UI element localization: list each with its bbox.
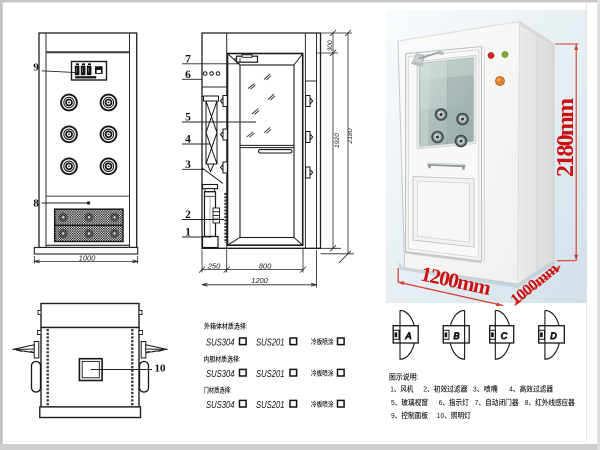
svg-text:1920: 1920 xyxy=(334,133,341,148)
svg-text:1200: 1200 xyxy=(251,276,269,285)
svg-text:4、高效过滤器: 4、高效过滤器 xyxy=(509,383,554,394)
svg-text:3、喷嘴: 3、喷嘴 xyxy=(473,383,499,394)
svg-text:冷板喷涂: 冷板喷涂 xyxy=(311,336,334,346)
svg-text:内胆材质选择:: 内胆材质选择: xyxy=(204,354,241,364)
svg-text:2、初效过滤器: 2、初效过滤器 xyxy=(423,383,468,394)
svg-text:8: 8 xyxy=(33,198,39,210)
svg-text:6、指示灯: 6、指示灯 xyxy=(439,397,470,408)
svg-text:8、红外线感应器: 8、红外线感应器 xyxy=(525,397,576,408)
svg-text:A: A xyxy=(404,331,411,341)
svg-text:SUS201: SUS201 xyxy=(256,400,285,411)
svg-text:9、控制面板: 9、控制面板 xyxy=(391,410,429,421)
svg-text:10、照明灯: 10、照明灯 xyxy=(437,410,472,421)
svg-text:7、自动闭门器: 7、自动闭门器 xyxy=(475,397,520,408)
svg-text:D: D xyxy=(550,331,557,341)
svg-text:SUS304: SUS304 xyxy=(206,369,235,380)
svg-text:250: 250 xyxy=(207,261,221,270)
svg-text:2180mm: 2180mm xyxy=(553,98,579,177)
svg-text:300: 300 xyxy=(327,40,334,52)
svg-text:B: B xyxy=(453,331,459,341)
svg-text:图示说明:: 图示说明: xyxy=(389,371,419,382)
svg-text:冷板喷涂: 冷板喷涂 xyxy=(311,368,334,378)
svg-text:SUS201: SUS201 xyxy=(256,337,285,348)
svg-text:门材质选择:: 门材质选择: xyxy=(204,385,232,395)
svg-text:C: C xyxy=(501,331,508,341)
svg-text:SUS304: SUS304 xyxy=(206,337,235,348)
svg-text:外箱体材质选择:: 外箱体材质选择: xyxy=(204,322,248,332)
svg-text:SUS304: SUS304 xyxy=(206,400,235,411)
svg-text:9: 9 xyxy=(33,62,39,74)
svg-text:800: 800 xyxy=(259,261,272,270)
svg-text:10: 10 xyxy=(155,363,167,375)
svg-text:冷板喷涂: 冷板喷涂 xyxy=(311,399,334,409)
svg-text:1000: 1000 xyxy=(79,253,97,262)
svg-text:2180: 2180 xyxy=(347,128,354,144)
svg-text:SUS201: SUS201 xyxy=(256,369,285,380)
svg-text:5、玻璃视窗: 5、玻璃视窗 xyxy=(391,397,428,408)
svg-text:1、风机: 1、风机 xyxy=(390,383,414,394)
